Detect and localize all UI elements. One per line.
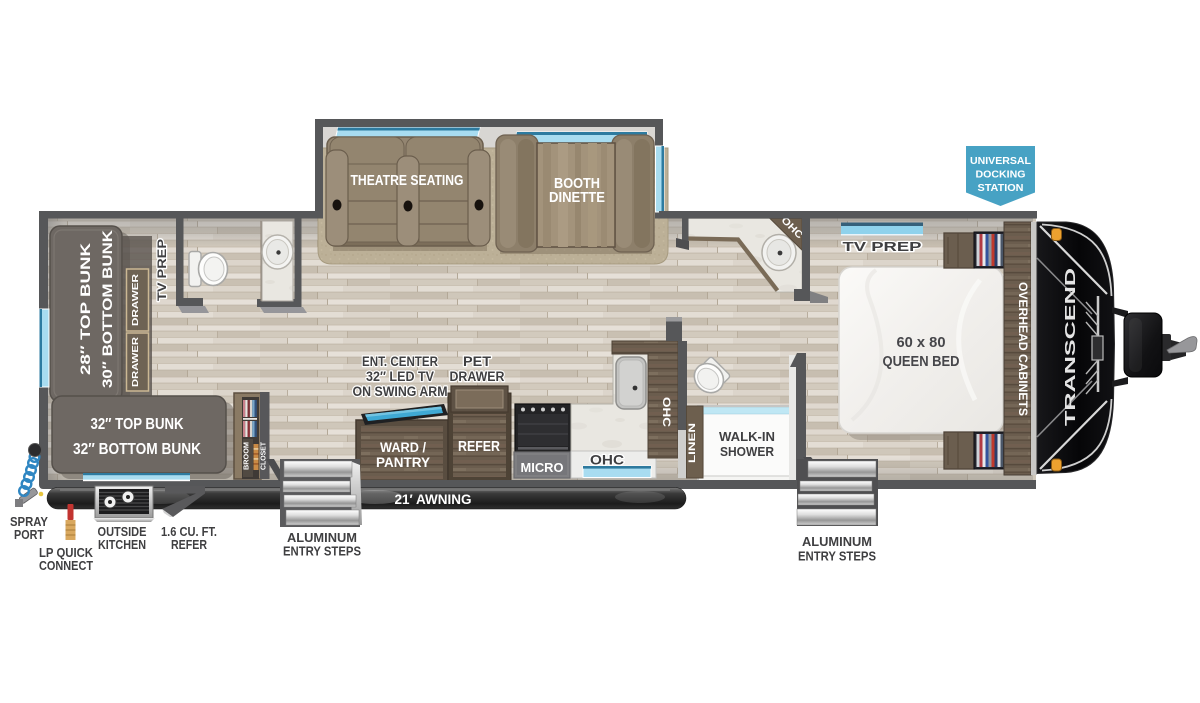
svg-text:PORT: PORT bbox=[14, 527, 44, 542]
svg-text:KITCHEN: KITCHEN bbox=[98, 537, 146, 552]
svg-text:DRAWER: DRAWER bbox=[131, 337, 140, 387]
svg-text:REFER: REFER bbox=[171, 537, 207, 552]
svg-text:SHOWER: SHOWER bbox=[720, 444, 775, 459]
svg-text:STATION: STATION bbox=[978, 182, 1024, 194]
svg-text:MICRO: MICRO bbox=[521, 461, 564, 475]
svg-text:ALUMINUM: ALUMINUM bbox=[802, 534, 872, 549]
svg-text:TV PREP: TV PREP bbox=[843, 239, 922, 254]
svg-text:WALK-IN: WALK-IN bbox=[719, 429, 775, 444]
svg-text:21′ AWNING: 21′ AWNING bbox=[395, 491, 472, 507]
svg-text:UNIVERSAL: UNIVERSAL bbox=[970, 155, 1032, 167]
svg-text:ON SWING ARM: ON SWING ARM bbox=[353, 384, 448, 399]
svg-text:THEATRE SEATING: THEATRE SEATING bbox=[351, 172, 464, 189]
svg-text:DINETTE: DINETTE bbox=[549, 190, 605, 206]
svg-text:32″ TOP BUNK: 32″ TOP BUNK bbox=[91, 416, 185, 433]
svg-text:WARD /: WARD / bbox=[380, 440, 426, 455]
svg-text:DRAWER: DRAWER bbox=[450, 369, 505, 384]
svg-text:CLOSET: CLOSET bbox=[259, 442, 268, 470]
svg-text:28″ TOP BUNK: 28″ TOP BUNK bbox=[77, 243, 93, 375]
svg-text:QUEEN BED: QUEEN BED bbox=[883, 354, 960, 370]
svg-text:PANTRY: PANTRY bbox=[376, 455, 430, 470]
svg-text:ENTRY STEPS: ENTRY STEPS bbox=[283, 544, 361, 559]
svg-text:TV PREP: TV PREP bbox=[157, 239, 169, 301]
svg-text:PET: PET bbox=[463, 354, 492, 369]
svg-text:BROOM: BROOM bbox=[242, 442, 251, 470]
svg-text:LINEN: LINEN bbox=[687, 423, 697, 463]
svg-text:32″ LED TV: 32″ LED TV bbox=[366, 369, 434, 384]
svg-text:REFER: REFER bbox=[458, 439, 500, 455]
svg-text:30″ BOTTOM BUNK: 30″ BOTTOM BUNK bbox=[99, 230, 115, 388]
svg-text:DRAWER: DRAWER bbox=[131, 274, 140, 326]
svg-text:32″ BOTTOM BUNK: 32″ BOTTOM BUNK bbox=[73, 441, 202, 458]
svg-text:TRANSCEND: TRANSCEND bbox=[1062, 268, 1079, 426]
svg-text:DOCKING: DOCKING bbox=[976, 169, 1026, 181]
svg-text:OHC: OHC bbox=[590, 453, 624, 468]
svg-text:60 x 80: 60 x 80 bbox=[897, 335, 946, 351]
svg-text:OVERHEAD CABINETS: OVERHEAD CABINETS bbox=[1016, 282, 1028, 416]
svg-text:ENT. CENTER: ENT. CENTER bbox=[362, 354, 438, 369]
svg-text:ENTRY STEPS: ENTRY STEPS bbox=[798, 549, 876, 564]
svg-text:OHC: OHC bbox=[660, 397, 672, 427]
svg-text:CONNECT: CONNECT bbox=[39, 558, 93, 573]
